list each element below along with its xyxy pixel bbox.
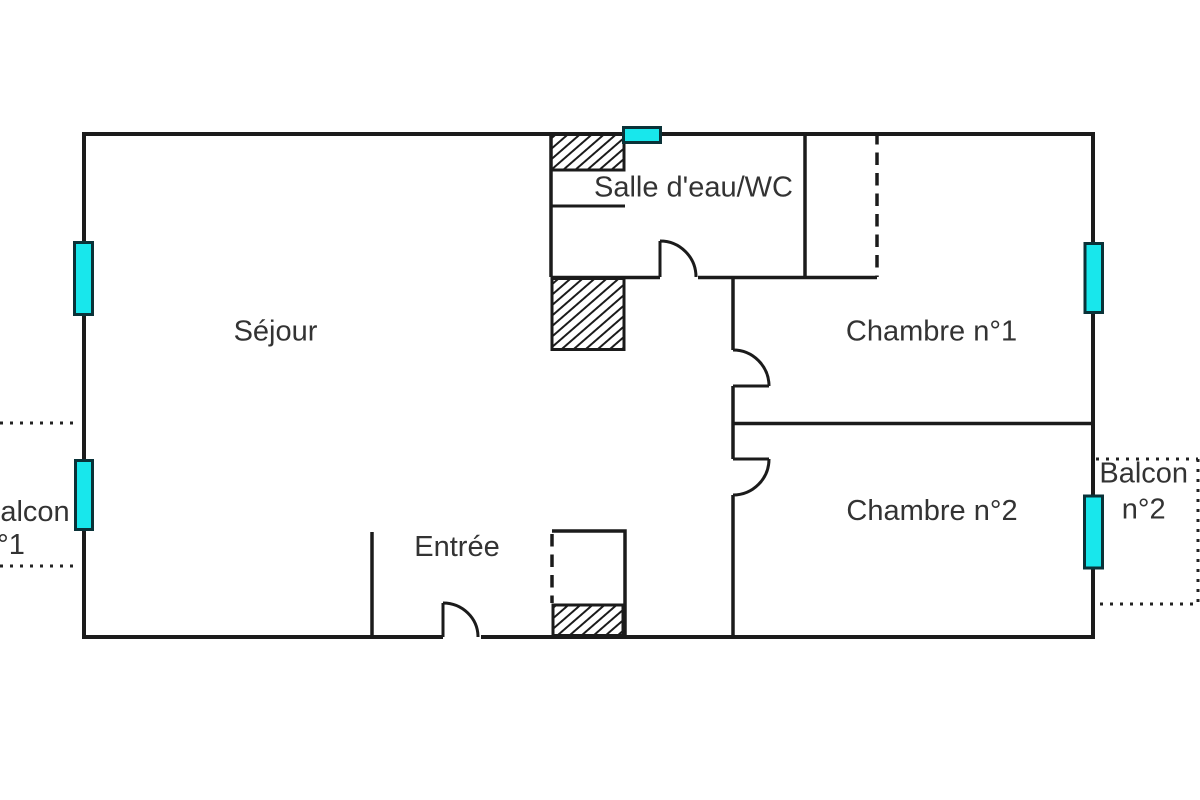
svg-text:n°1: n°1 xyxy=(0,529,25,561)
svg-text:Salle d'eau/WC: Salle d'eau/WC xyxy=(594,172,793,204)
svg-text:Chambre n°2: Chambre n°2 xyxy=(846,495,1017,527)
svg-text:Entrée: Entrée xyxy=(414,531,499,563)
svg-text:n°2: n°2 xyxy=(1122,494,1166,526)
svg-text:Chambre n°1: Chambre n°1 xyxy=(846,316,1017,348)
svg-text:Balcon: Balcon xyxy=(1099,458,1188,490)
svg-text:Balcon: Balcon xyxy=(0,496,70,528)
svg-text:Séjour: Séjour xyxy=(234,316,318,348)
